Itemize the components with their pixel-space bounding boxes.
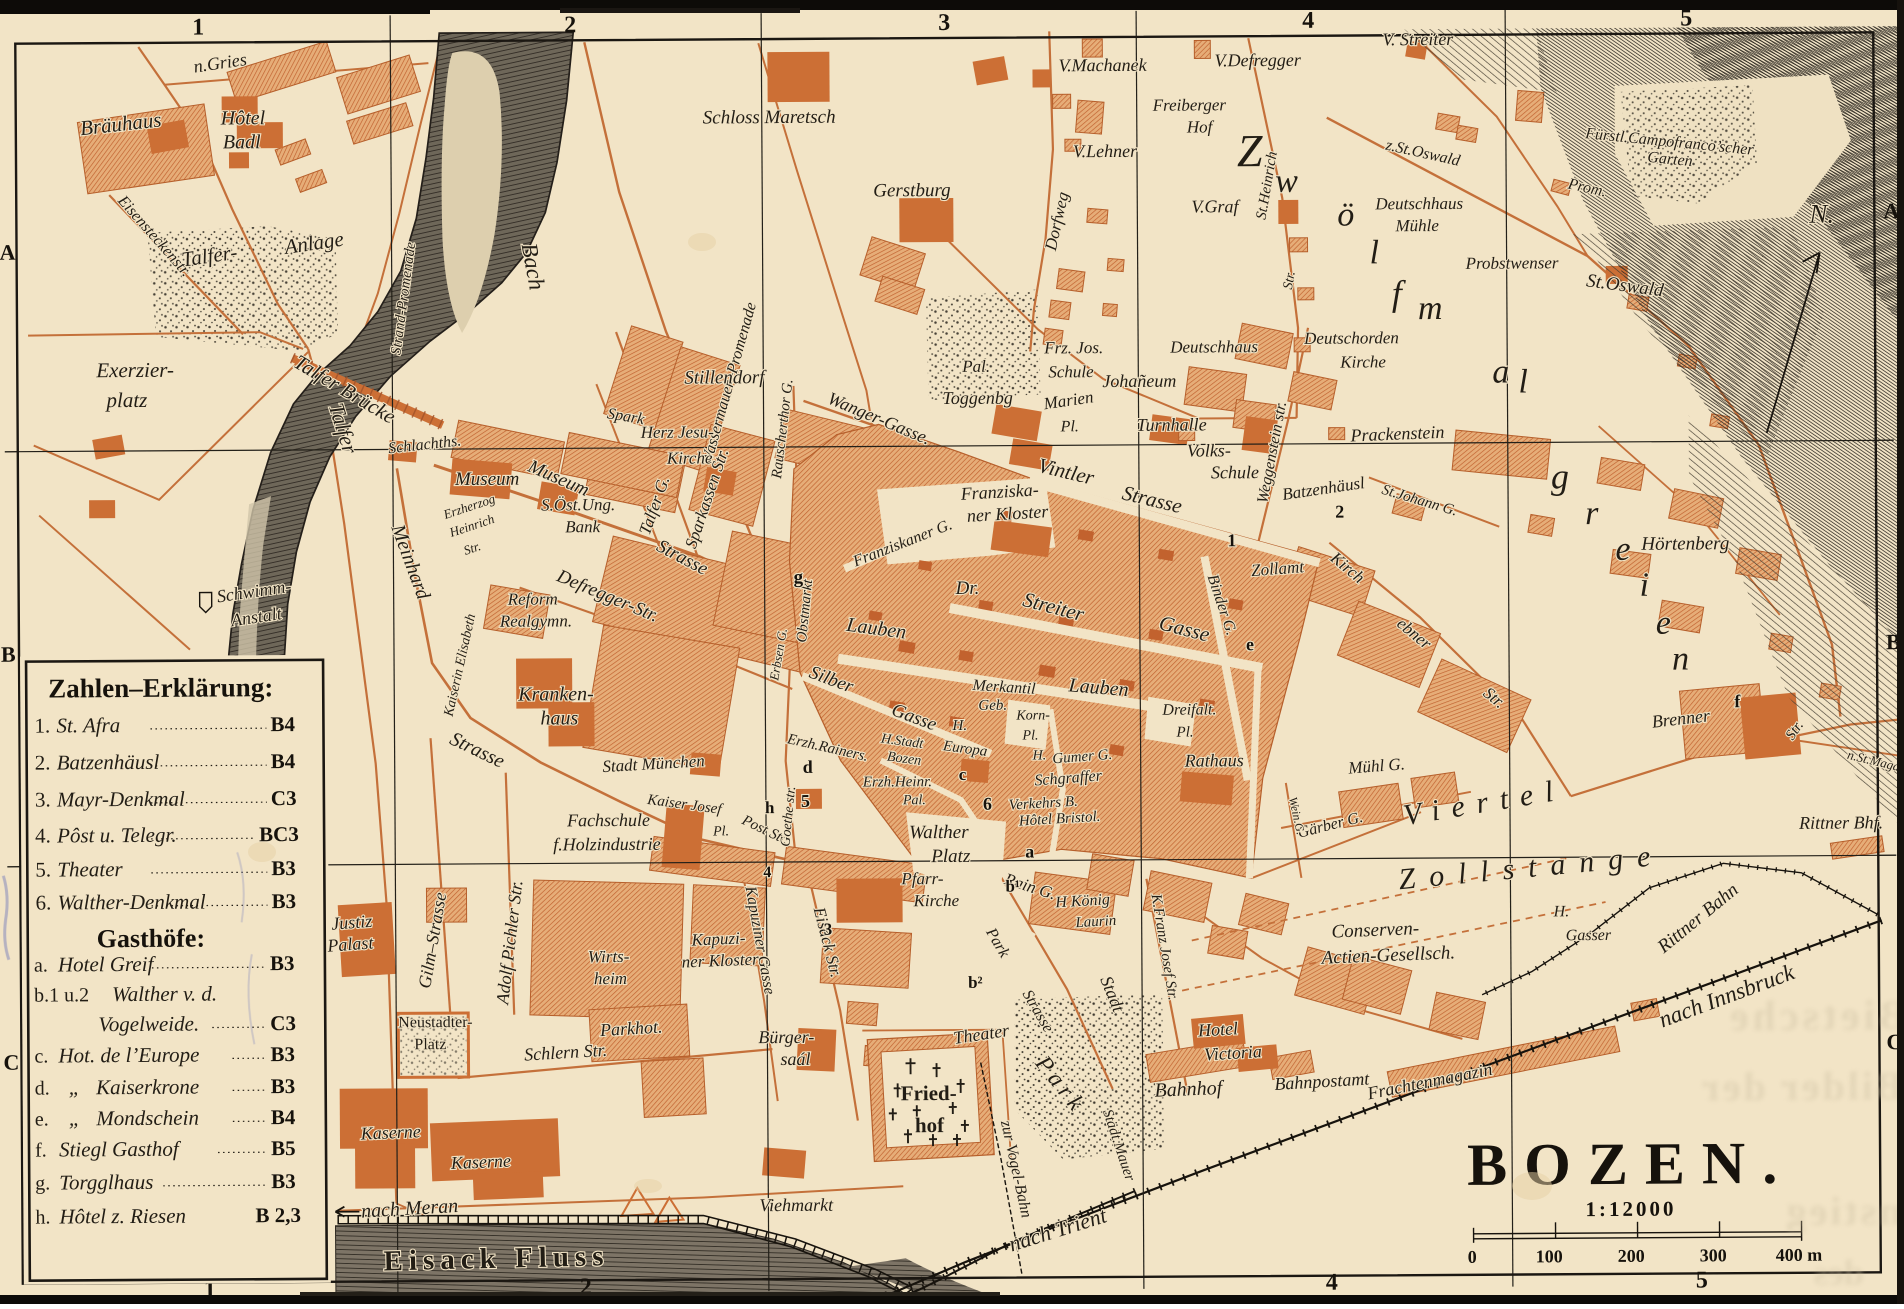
svg-text:Zahlen–Erklärung:: Zahlen–Erklärung:: [48, 672, 273, 703]
svg-text:Johañeum: Johañeum: [1102, 371, 1176, 391]
svg-text:Hotel: Hotel: [1196, 1018, 1238, 1040]
svg-text:Fried-: Fried-: [901, 1081, 957, 1105]
svg-text:Stiegl Gasthof: Stiegl Gasthof: [59, 1137, 182, 1162]
svg-text:B4: B4: [270, 712, 295, 736]
svg-text:Vogelweide.: Vogelweide.: [98, 1012, 199, 1037]
svg-text:0: 0: [1468, 1247, 1477, 1267]
svg-text:Bilder der: Bilder der: [1699, 1063, 1903, 1109]
svg-text:a: a: [1492, 354, 1509, 391]
svg-text:Walther: Walther: [909, 822, 969, 843]
svg-text:des: des: [1814, 1252, 1864, 1292]
svg-text:„ Mondschein: „ Mondschein: [69, 1106, 199, 1131]
svg-text:Rathaus: Rathaus: [1184, 750, 1244, 770]
svg-text:4.: 4.: [35, 823, 51, 847]
svg-text:A: A: [1883, 198, 1899, 223]
svg-text:Str.: Str.: [1281, 270, 1299, 291]
svg-text:Hörtenberg: Hörtenberg: [1640, 533, 1729, 555]
svg-text:c.: c.: [34, 1046, 48, 1068]
svg-text:Kirche: Kirche: [666, 448, 713, 467]
svg-text:ner Kloster: ner Kloster: [681, 949, 759, 971]
svg-text:Viehmarkt: Viehmarkt: [759, 1195, 834, 1215]
svg-text:Kirche: Kirche: [912, 891, 959, 910]
svg-text:Walther-Denkmal: Walther-Denkmal: [57, 890, 205, 915]
svg-text:B3: B3: [270, 1042, 295, 1066]
svg-text:Pal.: Pal.: [902, 793, 926, 808]
svg-text:Kaserne: Kaserne: [450, 1151, 512, 1173]
svg-text:Schloss Maretsch: Schloss Maretsch: [703, 107, 836, 129]
svg-text:Bietsche: Bietsche: [1726, 993, 1904, 1040]
svg-text:1:12000: 1:12000: [1585, 1197, 1676, 1222]
svg-text:Fachschule: Fachschule: [566, 810, 650, 831]
svg-text:heim: heim: [594, 969, 627, 988]
svg-text:Exerzier-: Exerzier-: [95, 358, 174, 382]
svg-text:d: d: [803, 757, 813, 777]
svg-text:Pl.: Pl.: [1060, 418, 1079, 435]
svg-text:Hot. de l’Europe: Hot. de l’Europe: [57, 1043, 199, 1068]
svg-text:f.Holzindustrie: f.Holzindustrie: [553, 834, 661, 855]
svg-text:platz: platz: [104, 388, 147, 412]
svg-text:1: 1: [1227, 530, 1236, 550]
svg-text:h: h: [765, 798, 775, 817]
svg-text:Dreifalt.: Dreifalt.: [1161, 701, 1216, 718]
svg-text:S.Öst.Ung.: S.Öst.Ung.: [541, 495, 615, 514]
svg-text:B5: B5: [271, 1136, 296, 1160]
svg-text:2: 2: [564, 12, 576, 38]
svg-text:g: g: [793, 567, 803, 588]
svg-text:V. Streiter: V. Streiter: [1382, 29, 1454, 49]
svg-text:w: w: [1275, 163, 1298, 200]
svg-text:b¹: b¹: [1005, 877, 1020, 896]
svg-text:g: g: [1551, 456, 1569, 496]
svg-text:Korn-: Korn-: [1015, 708, 1050, 723]
svg-text:f.: f.: [35, 1140, 47, 1162]
svg-text:Geb.: Geb.: [978, 698, 1007, 714]
svg-text:5: 5: [1696, 1267, 1708, 1293]
svg-text:4: 4: [763, 864, 771, 881]
svg-text:Z: Z: [1237, 125, 1263, 176]
svg-text:Justiz: Justiz: [330, 911, 372, 934]
svg-text:2: 2: [1335, 502, 1344, 522]
svg-text:Victoria: Victoria: [1204, 1041, 1263, 1064]
svg-text:3.: 3.: [35, 787, 51, 811]
svg-text:3: 3: [938, 10, 950, 36]
svg-text:3: 3: [824, 920, 833, 939]
svg-text:Mayr-Denkmal: Mayr-Denkmal: [56, 787, 185, 812]
svg-text:Platz: Platz: [414, 1036, 446, 1053]
svg-text:Kranken-: Kranken-: [517, 683, 594, 705]
svg-text:B4: B4: [271, 1105, 296, 1129]
svg-text:V.Defregger: V.Defregger: [1214, 50, 1302, 71]
svg-text:Batzenhäusl: Batzenhäusl: [57, 750, 160, 775]
svg-text:Theater: Theater: [57, 857, 123, 881]
svg-text:Parkhot.: Parkhot.: [598, 1017, 663, 1041]
svg-text:Deutschhaus: Deutschhaus: [1374, 194, 1463, 214]
svg-text:n: n: [1672, 640, 1689, 677]
svg-text:Frz. Jos.: Frz. Jos.: [1043, 338, 1103, 357]
svg-text:Kirche: Kirche: [1339, 352, 1386, 371]
svg-text:Torgglhaus: Torgglhaus: [59, 1170, 153, 1195]
svg-text:St. Afra: St. Afra: [56, 713, 120, 737]
svg-text:e.: e.: [35, 1109, 49, 1131]
svg-text:Reform: Reform: [507, 589, 558, 608]
svg-text:saál: saál: [780, 1049, 810, 1069]
svg-text:B 2,3: B 2,3: [255, 1203, 301, 1227]
svg-text:r: r: [1585, 495, 1599, 532]
svg-text:i: i: [1640, 567, 1650, 604]
svg-text:l: l: [1518, 363, 1528, 400]
svg-text:a.: a.: [34, 955, 48, 977]
svg-text:5: 5: [801, 791, 810, 811]
svg-text:B3: B3: [271, 1169, 296, 1193]
svg-text:Anstieg: Anstieg: [1783, 1188, 1904, 1234]
svg-text:Pl.: Pl.: [712, 824, 729, 839]
svg-text:e: e: [1246, 634, 1254, 654]
svg-text:H König: H König: [1054, 891, 1111, 911]
svg-text:H.: H.: [1553, 903, 1570, 920]
svg-text:1.: 1.: [34, 713, 50, 737]
svg-text:4: 4: [1326, 1270, 1338, 1296]
svg-text:Herz Jesu-: Herz Jesu-: [640, 422, 715, 441]
svg-text:Hotel Greif: Hotel Greif: [57, 952, 157, 977]
svg-text:„ Kaiserkrone: „ Kaiserkrone: [69, 1075, 200, 1100]
svg-text:e: e: [1656, 605, 1671, 642]
svg-text:Toggenbg: Toggenbg: [942, 388, 1012, 408]
svg-text:a: a: [1025, 841, 1034, 861]
svg-text:Hôtel z. Riesen: Hôtel z. Riesen: [58, 1204, 186, 1229]
svg-text:Pl.: Pl.: [1175, 725, 1193, 741]
svg-text:Mühle: Mühle: [1394, 216, 1439, 235]
svg-text:Pal.: Pal.: [961, 357, 990, 376]
svg-text:h.: h.: [35, 1207, 50, 1229]
svg-text:Deutschhaus: Deutschhaus: [1169, 337, 1258, 357]
svg-text:Conserven-: Conserven-: [1331, 918, 1419, 943]
svg-text:b²: b²: [968, 973, 983, 992]
svg-text:6.: 6.: [35, 890, 51, 914]
svg-text:Kapuzi-: Kapuzi-: [690, 928, 746, 949]
svg-text:ö: ö: [1337, 197, 1354, 234]
svg-text:Dr.: Dr.: [955, 578, 980, 599]
svg-text:N.: N.: [1808, 199, 1834, 229]
svg-text:Bürger-: Bürger-: [758, 1027, 814, 1047]
svg-text:haus: haus: [540, 707, 578, 729]
svg-text:B4: B4: [271, 749, 296, 773]
svg-text:Volks-: Volks-: [1187, 440, 1231, 460]
svg-text:100: 100: [1536, 1246, 1563, 1266]
svg-text:B: B: [1, 642, 16, 667]
svg-text:Hof: Hof: [1186, 117, 1215, 136]
svg-text:Palast: Palast: [326, 932, 375, 956]
svg-text:Turnhalle: Turnhalle: [1137, 414, 1207, 434]
svg-text:C3: C3: [270, 1011, 296, 1035]
svg-text:V.Graf: V.Graf: [1191, 196, 1241, 216]
svg-text:Probstwenser: Probstwenser: [1465, 253, 1559, 273]
svg-text:Schule: Schule: [1048, 362, 1094, 381]
svg-text:e: e: [1615, 531, 1630, 568]
svg-text:B3: B3: [271, 889, 296, 913]
svg-text:V.Lehner: V.Lehner: [1073, 141, 1138, 161]
svg-text:d.: d.: [35, 1078, 50, 1100]
svg-text:Kaserne: Kaserne: [359, 1121, 421, 1143]
svg-text:Neustadter-: Neustadter-: [398, 1014, 472, 1031]
svg-text:Schule: Schule: [1211, 462, 1259, 482]
svg-text:B3: B3: [271, 1074, 296, 1098]
svg-text:Pl.: Pl.: [1021, 728, 1038, 743]
svg-text:V.Machanek: V.Machanek: [1058, 55, 1147, 76]
svg-text:Realgymn.: Realgymn.: [499, 611, 572, 630]
svg-text:Platz: Platz: [930, 846, 971, 867]
svg-text:Pôst u. Telegr.: Pôst u. Telegr.: [56, 823, 177, 848]
svg-text:Freiberger: Freiberger: [1152, 95, 1227, 114]
svg-text:1: 1: [192, 15, 204, 41]
svg-text:2.: 2.: [35, 750, 51, 774]
svg-text:4: 4: [1302, 8, 1314, 34]
svg-text:200: 200: [1618, 1246, 1645, 1266]
svg-text:5.: 5.: [35, 857, 51, 881]
svg-text:c: c: [959, 765, 967, 784]
svg-text:b.1 u.2: b.1 u.2: [34, 984, 89, 1006]
svg-text:l: l: [1369, 234, 1379, 271]
svg-text:Rittner Bhf.: Rittner Bhf.: [1798, 812, 1883, 833]
svg-text:B3: B3: [270, 951, 295, 975]
svg-text:hof: hof: [915, 1113, 945, 1137]
svg-text:300: 300: [1700, 1245, 1727, 1265]
svg-text:Prackenstein: Prackenstein: [1349, 422, 1445, 446]
svg-text:C3: C3: [271, 786, 297, 810]
svg-text:Deutschorden: Deutschorden: [1303, 328, 1399, 348]
svg-text:Eisack Fluss: Eisack Fluss: [383, 1240, 610, 1277]
svg-text:C: C: [3, 1050, 19, 1075]
svg-text:Walther v. d.: Walther v. d.: [112, 981, 217, 1006]
svg-text:Bahnhof: Bahnhof: [1154, 1077, 1225, 1102]
svg-text:B3: B3: [271, 856, 296, 880]
svg-text:Erzh.Heinr.: Erzh.Heinr.: [862, 774, 932, 790]
svg-text:Badl: Badl: [223, 131, 261, 153]
svg-text:A: A: [0, 240, 16, 265]
svg-text:m: m: [1418, 290, 1443, 327]
svg-text:Museum: Museum: [454, 469, 520, 490]
svg-text:Gasthöfe:: Gasthöfe:: [97, 924, 206, 954]
svg-text:Hôtel: Hôtel: [220, 107, 266, 129]
svg-text:Laurin: Laurin: [1074, 913, 1117, 931]
svg-text:Pfarr-: Pfarr-: [900, 869, 944, 888]
svg-text:Gasser: Gasser: [1566, 927, 1612, 944]
svg-text:Stillendorf: Stillendorf: [684, 367, 767, 389]
svg-text:H.: H.: [1032, 748, 1047, 763]
svg-text:Gerstburg: Gerstburg: [873, 180, 951, 201]
svg-text:Bank: Bank: [565, 517, 600, 536]
svg-text:Wirts-: Wirts-: [588, 947, 630, 966]
svg-text:H.: H.: [951, 718, 967, 734]
svg-text:g.: g.: [35, 1173, 50, 1195]
svg-text:6: 6: [983, 794, 992, 814]
